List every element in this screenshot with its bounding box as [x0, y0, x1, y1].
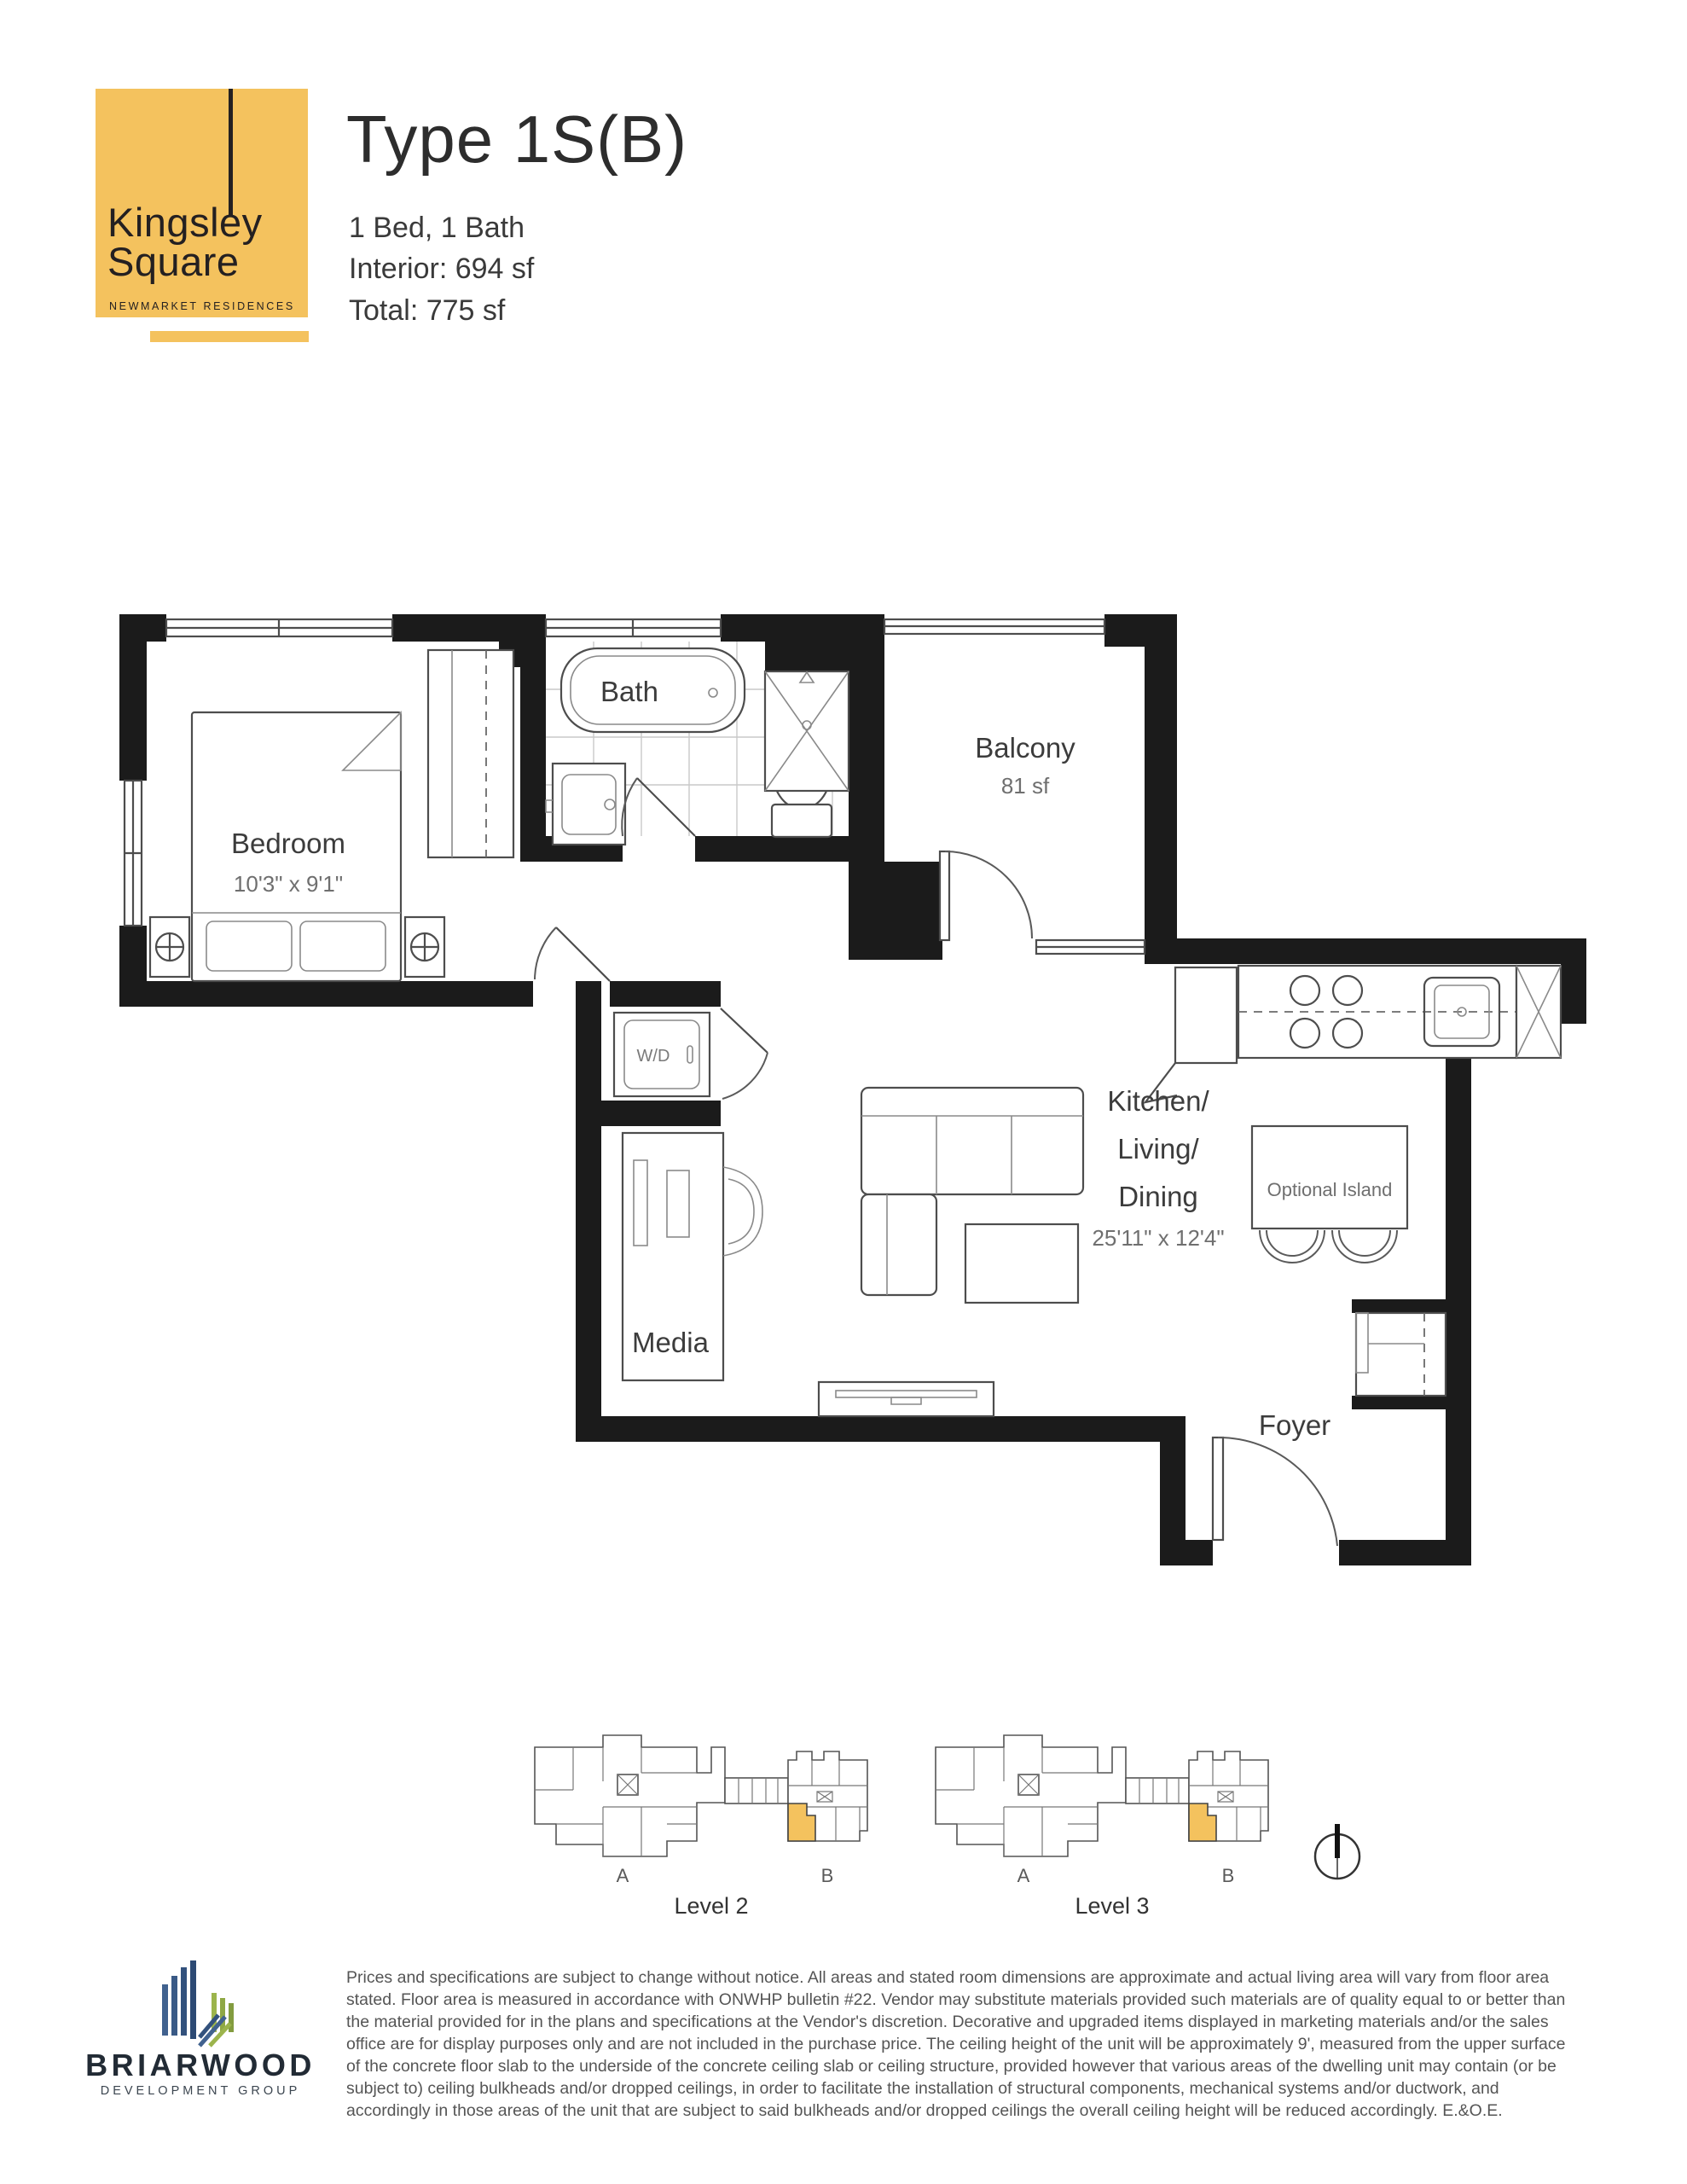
- logo-tagline: NEWMARKET RESIDENCES: [109, 300, 295, 312]
- bedroom-door: [535, 927, 610, 981]
- logo-wordmark: Kingsley Square: [107, 203, 263, 282]
- fridge-icon: [1516, 966, 1561, 1058]
- floorplan-sheet: Kingsley Square NEWMARKET RESIDENCES Typ…: [0, 0, 1687, 2184]
- balcony-area: 81 sf: [1001, 773, 1050, 799]
- bath-label: Bath: [600, 676, 658, 707]
- briarwood-brand-tagline: DEVELOPMENT GROUP: [77, 2084, 324, 2098]
- logo-underline-bar: [150, 331, 309, 342]
- kitchen-counter: [1145, 966, 1561, 1102]
- keyplan-level-3: A B Level 3: [923, 1722, 1281, 1931]
- wd-label: W/D: [637, 1047, 670, 1066]
- keyplan2-level-label: Level 2: [674, 1893, 748, 1919]
- keyplan3-level-label: Level 3: [1075, 1893, 1149, 1919]
- page-title: Type 1S(B): [346, 101, 687, 178]
- keyplan2-wing-a: A: [617, 1865, 629, 1886]
- nightstand-right: [405, 917, 444, 977]
- briarwood-brand-name: BRIARWOOD: [77, 2047, 324, 2083]
- keyplan3-wing-a: A: [1017, 1865, 1030, 1886]
- kitchen-label-1: Kitchen/: [1107, 1085, 1209, 1117]
- laundry-door: [721, 1008, 768, 1099]
- legal-disclaimer: Prices and specifications are subject to…: [346, 1967, 1579, 2122]
- floor-plan: W/D Media: [111, 597, 1612, 1578]
- shower: [765, 671, 849, 791]
- washer-dryer: W/D: [614, 1013, 710, 1096]
- coffee-table: [965, 1224, 1078, 1303]
- nightstand-left: [150, 917, 189, 977]
- tv-console: [819, 1382, 994, 1416]
- media-desk: Media: [623, 1133, 762, 1380]
- logo-vertical-line: [229, 89, 233, 217]
- logo-word-1: Kingsley: [107, 203, 263, 242]
- kitchen-label-3: Dining: [1118, 1181, 1198, 1212]
- foyer-closet: [1356, 1313, 1446, 1396]
- keyplan-level-2: A B Level 2: [522, 1722, 880, 1931]
- balcony-door: [940, 851, 1032, 940]
- spec-total: Total: 775 sf: [349, 290, 534, 331]
- media-label: Media: [632, 1327, 710, 1358]
- foyer-label: Foyer: [1259, 1409, 1330, 1441]
- logo-word-2: Square: [107, 242, 263, 282]
- bath-door: [622, 778, 695, 836]
- balcony-label: Balcony: [975, 732, 1075, 764]
- entry-door: [1213, 1438, 1337, 1546]
- bedroom-label: Bedroom: [231, 828, 345, 859]
- optional-island: Optional Island: [1252, 1126, 1407, 1263]
- spec-interior: Interior: 694 sf: [349, 248, 534, 289]
- bath-sink: [546, 764, 625, 845]
- spec-bed-bath: 1 Bed, 1 Bath: [349, 207, 534, 248]
- unit-specs: 1 Bed, 1 Bath Interior: 694 sf Total: 77…: [349, 207, 534, 331]
- north-compass-icon: [1307, 1819, 1368, 1887]
- keyplan3-wing-b: B: [1222, 1865, 1235, 1886]
- briarwood-logo-icon: [138, 1955, 258, 2049]
- wardrobe: [428, 650, 513, 857]
- kitchen-dims: 25'11" x 12'4": [1092, 1225, 1224, 1251]
- bedroom-dims: 10'3" x 9'1": [234, 871, 343, 897]
- kitchen-label-2: Living/: [1117, 1133, 1199, 1165]
- island-label: Optional Island: [1267, 1179, 1393, 1200]
- keyplan2-wing-b: B: [821, 1865, 834, 1886]
